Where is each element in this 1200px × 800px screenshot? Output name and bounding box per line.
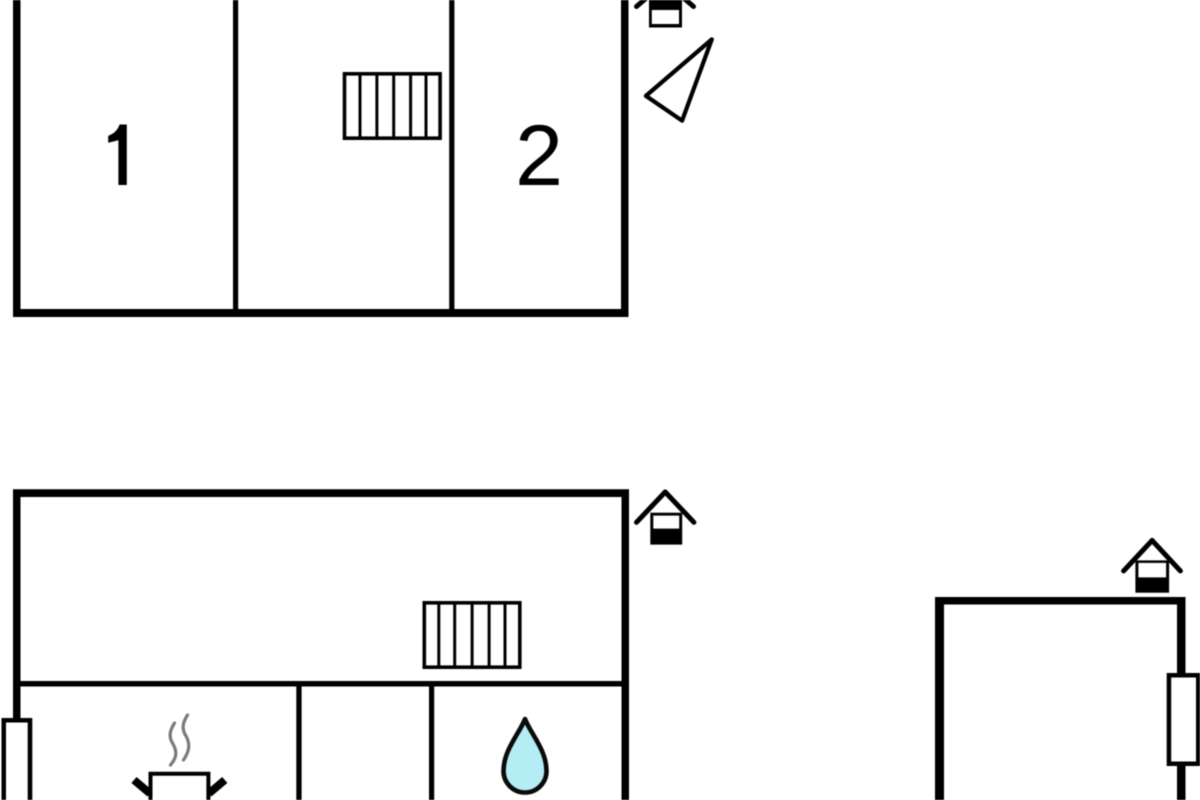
svg-text:2: 2 [515, 108, 563, 204]
